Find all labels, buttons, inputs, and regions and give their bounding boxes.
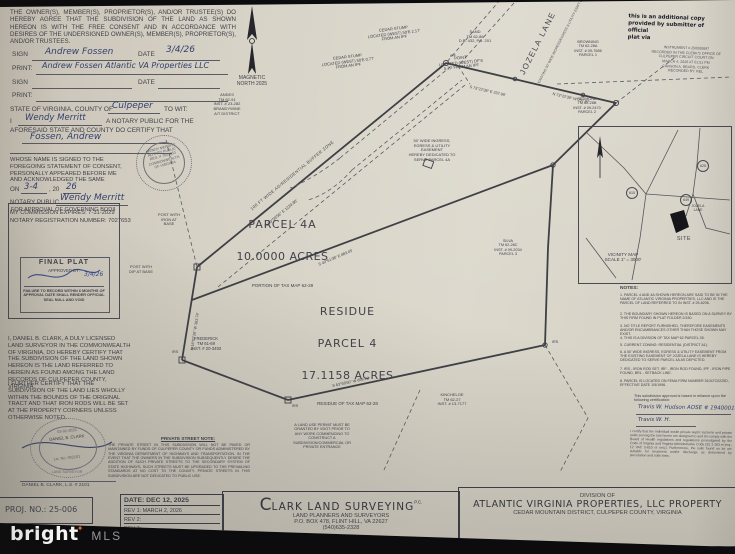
rev4-row: REV 4: xyxy=(124,535,220,541)
plat-paper: THE OWNER(S), MEMBER(S), PROPRIETOR(S), … xyxy=(0,0,735,554)
brightmls-watermark: bright ✦ MLS xyxy=(10,523,122,545)
irs-marker-2: IRS xyxy=(552,340,558,344)
print1-label: PRINT: xyxy=(12,65,33,73)
parcel4a-name: PARCEL 4A xyxy=(225,219,340,232)
vicinity-site-label: SITE xyxy=(672,236,696,242)
post-dip-label: POST WITH DIP AT BASE xyxy=(122,265,160,274)
note-3: 3. NO TITLE REPORT FURNISHED, THEREFORE … xyxy=(620,324,732,337)
subject-name-handwritten: Fossen, Andrew xyxy=(30,132,101,143)
residue-l1: RESIDUE xyxy=(285,306,410,319)
residue-block: RESIDUE PARCEL 4 17.1158 ACRES RESIDUE O… xyxy=(285,287,410,426)
governing-bodies-title: FOR APPROVAL OF GOVERNING BODIES xyxy=(11,207,115,214)
north-arrow-icon xyxy=(247,6,257,74)
date-row: DATE: DEC 12, 2025 xyxy=(124,497,220,506)
final-plat-title: FINAL PLAT xyxy=(20,259,108,267)
consent-statement: THE OWNER(S), MEMBER(S), PROPRIETOR(S), … xyxy=(10,9,236,46)
certification-reliance-note: This subdivision approval is based in re… xyxy=(634,394,734,403)
additional-copy-note: this is an additional copy provided by s… xyxy=(628,13,721,44)
sign2-line xyxy=(32,88,132,89)
adjoiner-kincheloe: KINCHELOE TM 62-27 INST. # 13-7177 xyxy=(426,393,478,407)
date-rev-table: DATE: DEC 12, 2025 REV 1: MARCH 2, 2026 … xyxy=(120,494,224,548)
health-certification-note: I certify that the individual onsite pri… xyxy=(630,429,732,459)
notary-i: I xyxy=(10,118,12,126)
irs-marker-3: IRS xyxy=(172,350,178,354)
firm-name: LARK LAND SURVEYING xyxy=(271,501,414,513)
note-2: 2. THE BOUNDARY SHOWN HEREON IS BASED ON… xyxy=(620,312,732,320)
aose-signature-line-2 xyxy=(636,426,696,427)
aose-signature-line-1 xyxy=(636,414,731,415)
note-1: 1. PARCEL 4 AND 4A SHOWN HEREON ARE SAID… xyxy=(620,293,732,306)
year-handwritten: 26 xyxy=(66,182,77,192)
print1-value: Andrew Fossen Atlantic VA Properties LLC xyxy=(42,61,209,70)
scanned-survey-plat-photo: { "consent": { "text": "THE OWNER(S), ME… xyxy=(0,0,735,554)
route-shield-625: 625 xyxy=(697,160,709,172)
sign1-label: SIGN xyxy=(12,51,28,59)
final-plat-date: 3/4/26 xyxy=(84,271,103,278)
on-date-line xyxy=(21,193,47,194)
magnetic-north-label: MAGNETIC NORTH 2025 xyxy=(222,76,282,88)
ipf-marker: IPF xyxy=(450,54,456,58)
owner-title: ATLANTIC VIRGINIA PROPERTIES, LLC PROPER… xyxy=(459,499,735,510)
notary-body: WHOSE NAME IS SIGNED TO THE FOREGOING ST… xyxy=(10,157,128,184)
sign2-label: SIGN xyxy=(12,79,28,87)
brightmls-spark-icon: ✦ xyxy=(77,524,84,533)
adjoiner-andes: ANDES TM 62-91 INST. # 23-282 BRANDYWINE… xyxy=(208,93,246,117)
aose-signature-1: Travis W. Hudson AOSE # 1940001434 xyxy=(638,404,735,412)
adjoiner-sand: SAND TM 62-86 D.B. 432, PG. 201 xyxy=(452,30,498,44)
print2-label: PRINT: xyxy=(12,92,33,100)
project-title-cell: DIVISION OF ATLANTIC VIRGINIA PROPERTIES… xyxy=(458,487,735,547)
year20: , 20 xyxy=(49,186,59,193)
jozela-lane-label: JOZELA LANE xyxy=(518,10,558,76)
firm-initial: C xyxy=(260,495,272,515)
private-street-note-title: PRIVATE STREET NOTE: xyxy=(128,436,248,441)
sign2-date-line xyxy=(158,88,220,89)
rev3-row: REV 3: xyxy=(124,526,220,533)
bearing-ne1: S 73°22'38" E 237.99' xyxy=(469,85,506,98)
notary-name-handwritten: Wendy Merritt xyxy=(25,113,86,123)
on-date-handwritten: 3-4 xyxy=(24,182,38,192)
cedar-stump-label-2: CEDAR STUMP LOCATED (WEST) 50'E 0.77' FR… xyxy=(299,49,396,75)
easement-label: 50' WIDE INGRESS, EGRESS & UTILITY EASEM… xyxy=(396,139,468,163)
brightmls-mls: MLS xyxy=(91,529,122,543)
surveyor-signature-line xyxy=(20,481,116,482)
point-located-label: POINT LOCATED (WEST) OF'S 5.29' FROM AN … xyxy=(427,53,494,74)
note-5: 5. CURRENT ZONING: RESIDENTIAL (DISTRICT… xyxy=(620,343,732,347)
rev1-row: REV 1: MARCH 2, 2026 xyxy=(124,508,220,515)
surveyor-printed-name: DANIEL B. CLARK, L.S. # 2101 xyxy=(22,483,90,489)
sign1-date-label: DATE xyxy=(138,51,155,59)
cedar-stump-label-1: CEDAR STUMP LOCATED (WEST) 50'E 2.17' FR… xyxy=(343,21,446,47)
adjoiner-silva: SILVA TM 62-28C INST. # 09-2034 PARCEL 3 xyxy=(486,239,530,257)
note-4: 4. THIS IS A DIVISION OF TAX MAP 62 PARC… xyxy=(620,336,732,340)
surveyor-cert-p2: I FURTHER CERTIFY THAT THE SUBDIVISION O… xyxy=(8,381,132,422)
vdot-permit-note: A LAND USE PERMIT MUST BE GRANTED BY VDO… xyxy=(293,423,351,450)
residue-l2: PARCEL 4 xyxy=(285,338,410,351)
vicinity-title-scale: VICINITY MAP SCALE 1" = 3000' xyxy=(590,252,656,263)
firm-name-line: CLARK LAND SURVEYINGP.C. xyxy=(223,495,459,515)
final-plat-warning: FAILURE TO RECORD WITHIN 6 MONTHS OF APP… xyxy=(22,289,106,302)
rev2-row: REV 2: xyxy=(124,517,220,524)
on-label: ON xyxy=(10,186,19,193)
to-wit: TO WIT: xyxy=(164,106,188,114)
project-number-cell: PROJ. NO.: 25-006 xyxy=(0,497,93,524)
aose-signature-2: Travis W. H. xyxy=(638,417,670,423)
sign1-signature: Andrew Fossen xyxy=(45,47,113,58)
firm-pc: P.C. xyxy=(414,500,422,505)
vicinity-jozela-label: JOZELA LANE xyxy=(686,204,710,212)
surveyor-seal-title: LAND SURVEYOR xyxy=(30,470,104,474)
adjoiner-browning: BROWNING TM 62-28A INST. # 09-7686 PARCE… xyxy=(568,40,608,58)
sign1-date-value: 3/4/26 xyxy=(166,45,195,56)
irs-marker-1: IRS xyxy=(292,404,298,408)
notes-title: NOTES: xyxy=(620,286,638,292)
route-shield-615: 615 xyxy=(626,187,638,199)
final-plat-divider xyxy=(24,286,104,287)
notary-name-line xyxy=(18,125,102,126)
note-8: 8. PARCEL IS LOCATED ON FEMA FIRM NUMBER… xyxy=(620,379,732,387)
county-handwritten: Culpeper xyxy=(112,101,153,112)
firm-cell: CLARK LAND SURVEYINGP.C. LAND PLANNERS A… xyxy=(222,491,460,547)
residue-sub: RESIDUE OF TAX MAP 62-28 xyxy=(285,401,410,406)
post-iron-label: POST WITH IRON AT BASE xyxy=(152,213,186,227)
county-line xyxy=(108,113,160,114)
print1-line xyxy=(36,74,228,75)
district-line: CEDAR MOUNTAIN DISTRICT, CULPEPER COUNTY… xyxy=(459,510,735,516)
sign2-date-label: DATE xyxy=(138,79,155,87)
brightmls-brand: bright xyxy=(10,523,79,545)
firm-phone: (540)635-2328 xyxy=(223,525,459,531)
adjoiner-frederick: FREDERICK TM 61-69 INST. # 20-3493 xyxy=(176,337,236,352)
project-number: PROJ. NO.: 25-006 xyxy=(5,505,77,514)
notary-intro-rest: A NOTARY PUBLIC FOR THE xyxy=(106,118,194,126)
note-6: 6. A 50' WIDE INGRESS, EGRESS & UTILITY … xyxy=(620,350,732,363)
recording-instrument-block: INSTRUMENT # 250000697 RECORDED IN THE C… xyxy=(646,45,727,76)
note-7: 7. IRS - IRON ROD SET, IRF - IRON ROD FO… xyxy=(620,367,732,375)
private-street-note-text: THE PRIVATE STREET IN THIS SUBDIVISION W… xyxy=(108,443,250,478)
